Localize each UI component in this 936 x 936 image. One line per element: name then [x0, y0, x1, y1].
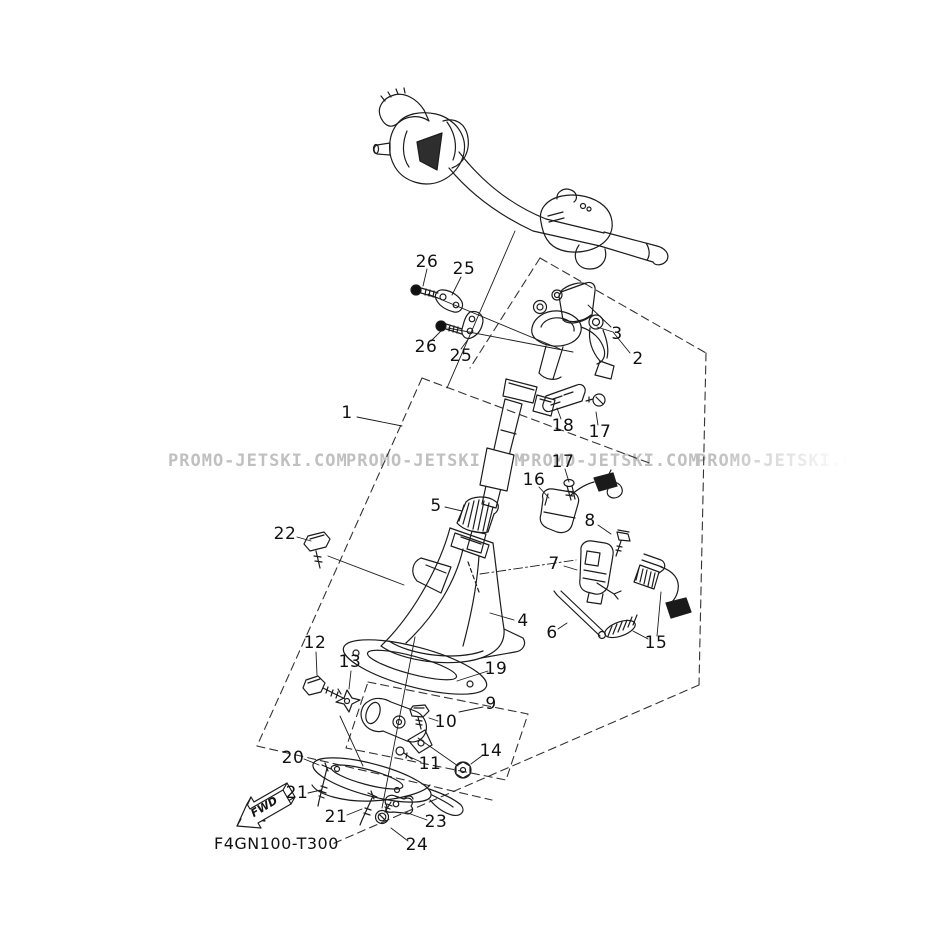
- link-25-upper: [435, 290, 462, 312]
- part-label-7: 7: [548, 554, 559, 574]
- part-label-15: 15: [645, 633, 668, 653]
- part-label-21a: 21: [286, 783, 309, 803]
- bolt-17-lower: [564, 480, 575, 501]
- part-label-22: 22: [274, 524, 297, 544]
- switch-cluster: [554, 530, 691, 641]
- steering-housing-4: [381, 528, 525, 663]
- upper-clamp-cluster: [411, 282, 614, 379]
- part-label-26b: 26: [415, 337, 438, 357]
- part-label-10: 10: [435, 712, 458, 732]
- bolt-12: [303, 676, 345, 699]
- part-label-9: 9: [485, 694, 496, 714]
- part-label-2: 2: [632, 349, 643, 369]
- bolt-17-upper: [586, 394, 605, 406]
- part-label-4: 4: [517, 611, 528, 631]
- connector-plug-upper: [594, 473, 617, 491]
- part-label-1: 1: [341, 403, 352, 423]
- wire-relay-cluster: [540, 470, 622, 533]
- switch-7: [580, 541, 621, 604]
- rod-6: [554, 591, 606, 639]
- diagram-drawing: FWD: [0, 0, 936, 936]
- part-label-12: 12: [304, 633, 327, 653]
- part-label-20: 20: [282, 748, 305, 768]
- part-label-18: 18: [552, 416, 575, 436]
- bolt-8: [616, 530, 630, 556]
- part-label-19: 19: [485, 659, 508, 679]
- part-label-5: 5: [430, 496, 441, 516]
- bracket-2: [589, 315, 614, 379]
- universal-joint-9: [361, 698, 471, 778]
- parts-diagram-stage: PROMO-JETSKI.COM PROMO-JETSKI.COM PROMO-…: [0, 0, 936, 936]
- bushing-5: [457, 497, 498, 553]
- part-label-23: 23: [425, 812, 448, 832]
- part-label-14: 14: [480, 741, 503, 761]
- part-label-13: 13: [339, 652, 362, 672]
- part-label-8: 8: [584, 511, 595, 531]
- part-label-6: 6: [546, 623, 557, 643]
- nut-14: [455, 762, 471, 778]
- part-label-17b: 17: [552, 452, 575, 472]
- screw-21-left: [318, 763, 331, 806]
- column-side-box: [533, 395, 555, 416]
- spring-15: [603, 615, 638, 641]
- part-label-26a: 26: [416, 252, 439, 272]
- part-label-3: 3: [611, 324, 622, 344]
- gasket-19: [338, 629, 491, 706]
- boot-connector-15: [634, 554, 691, 618]
- bolt-22: [304, 532, 330, 568]
- part-label-25b: 25: [450, 346, 473, 366]
- part-label-17a: 17: [589, 422, 612, 442]
- part-code: F4GN100-T300: [214, 834, 339, 853]
- part-label-24: 24: [406, 835, 429, 855]
- part-label-16: 16: [523, 470, 546, 490]
- part-label-11: 11: [419, 754, 442, 774]
- handlebar-assembly: [374, 88, 668, 269]
- wing-piece-13: [336, 689, 360, 712]
- part-label-21b: 21: [325, 807, 348, 827]
- part-label-25a: 25: [453, 259, 476, 279]
- bolt-26-lower: [436, 321, 446, 331]
- bolt-26-upper: [411, 285, 421, 295]
